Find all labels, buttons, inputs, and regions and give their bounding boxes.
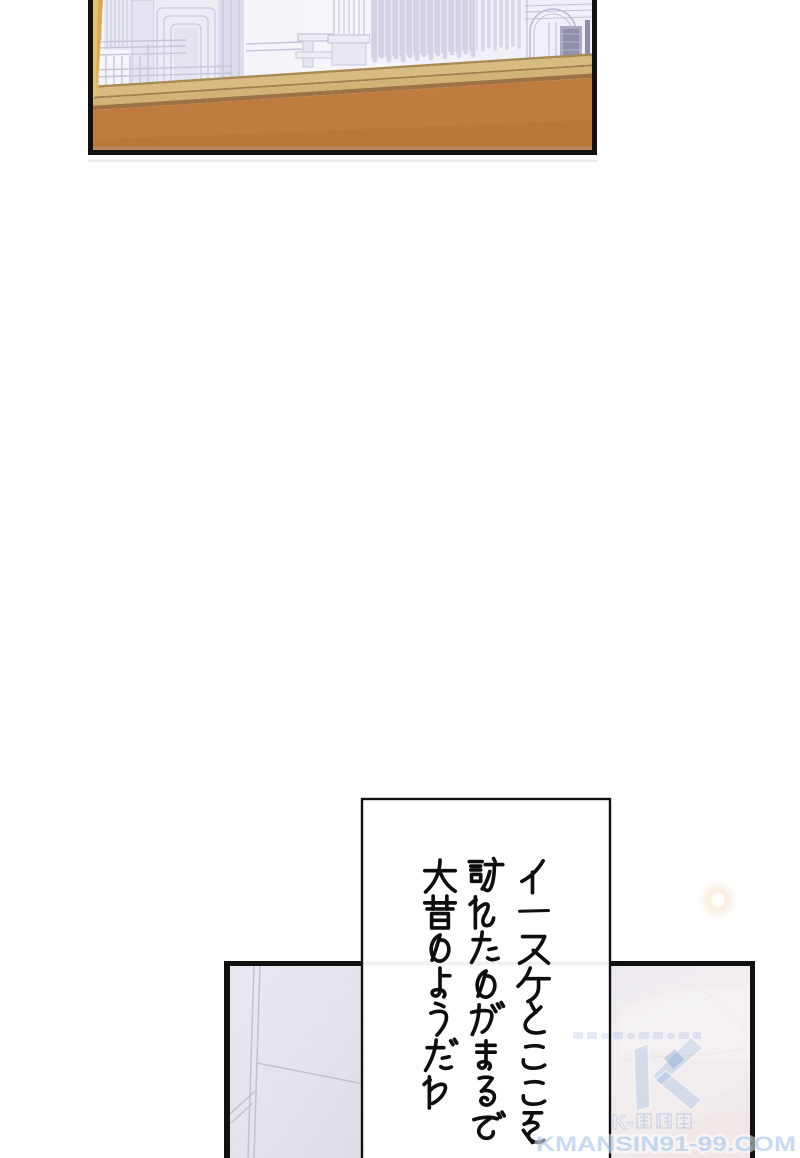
svg-text:K-: K- [612, 1112, 633, 1134]
svg-text:KMANSIN91-99.COM: KMANSIN91-99.COM [536, 1132, 796, 1156]
